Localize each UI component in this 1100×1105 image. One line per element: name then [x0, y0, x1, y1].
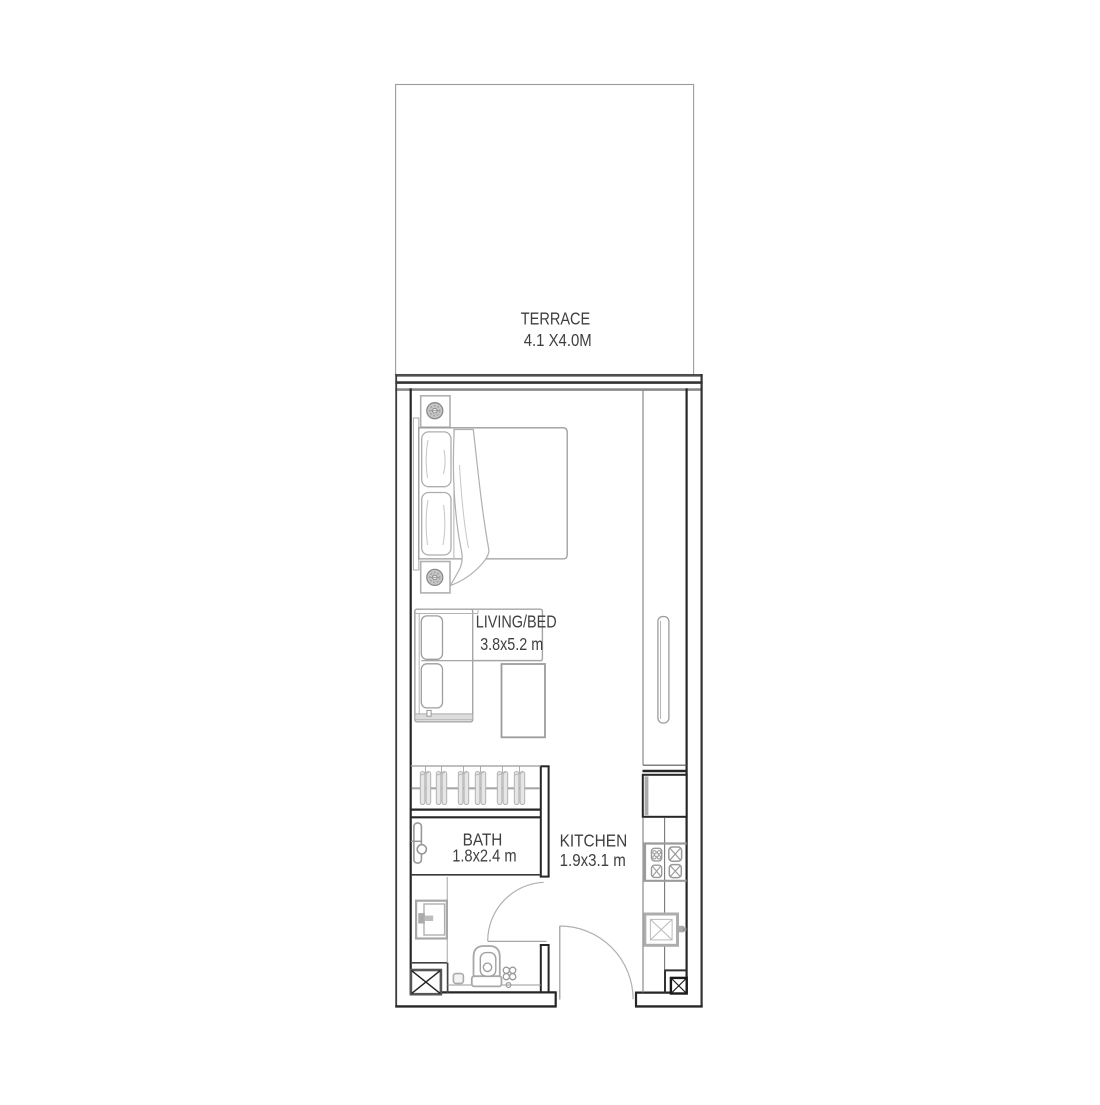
svg-text:LIVING/BED: LIVING/BED: [476, 612, 557, 632]
svg-text:1.8x2.4 m: 1.8x2.4 m: [452, 845, 516, 865]
svg-text:3.8x5.2 m: 3.8x5.2 m: [480, 634, 543, 654]
svg-text:4.1 X4.0M: 4.1 X4.0M: [524, 330, 592, 350]
svg-text:KITCHEN: KITCHEN: [560, 830, 628, 850]
svg-text:TERRACE: TERRACE: [521, 308, 591, 328]
svg-text:1.9x3.1 m: 1.9x3.1 m: [560, 850, 626, 870]
